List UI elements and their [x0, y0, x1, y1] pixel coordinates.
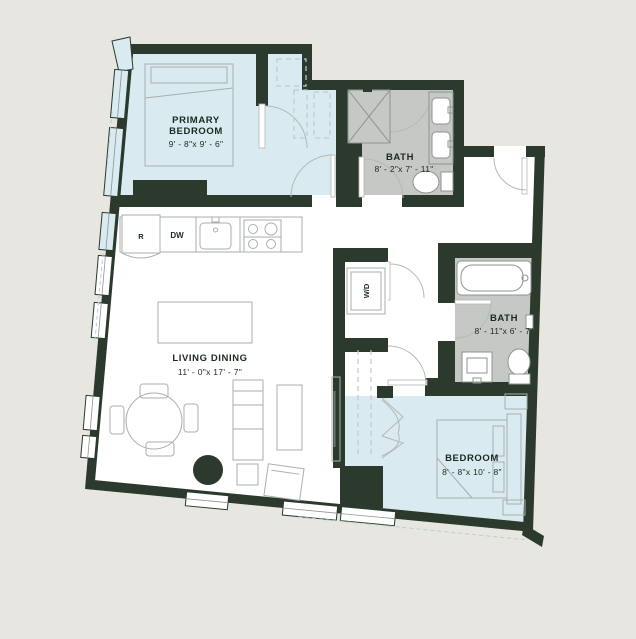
- entry-door-leaf: [522, 158, 527, 194]
- bath1-left-wall: [336, 80, 348, 207]
- floor-plan: W/D PRIMARY BEDROOM 9' -: [0, 0, 636, 639]
- side-table: [193, 455, 223, 485]
- bath2-left-wall-upper: [438, 243, 455, 303]
- primary-bedroom-label-1: PRIMARY: [172, 115, 220, 126]
- laundry: W/D: [345, 262, 388, 338]
- primary-bedroom-dims: 9' - 8"x 9' - 6": [169, 139, 224, 149]
- bath1-door-leaf: [359, 157, 364, 197]
- bath2-label: BATH: [490, 313, 518, 324]
- bath1-right-wall: [453, 80, 464, 207]
- laundry-bottom-wall: [333, 338, 388, 352]
- bedroom-dims: 8' - 8"x 10' - 8": [442, 467, 502, 477]
- bath1-top-wall: [312, 80, 464, 90]
- bath1-sink-2: [432, 132, 450, 158]
- bath2-toilet-bowl: [508, 349, 530, 375]
- kitchen-wall-chunk: [133, 180, 207, 200]
- living-dining-dims: 11' - 0"x 17' - 7": [178, 367, 242, 377]
- step-wall: [302, 44, 312, 90]
- bath2-toilet-tank: [509, 374, 530, 384]
- primary-bedroom-label-2: BEDROOM: [169, 126, 223, 137]
- shower-head: [363, 87, 372, 92]
- primary-closet-door-leaf: [259, 104, 265, 148]
- dishwasher-label: DW: [170, 231, 184, 240]
- bedroom-label: BEDROOM: [445, 453, 499, 464]
- bath2-left-wall-lower: [438, 341, 455, 382]
- washer-dryer-label: W/D: [362, 283, 371, 298]
- bath1-label: BATH: [386, 152, 414, 163]
- bath2-door-leaf: [455, 300, 491, 304]
- floor-plan-page: W/D PRIMARY BEDROOM 9' -: [0, 0, 636, 639]
- bedroom-sw-wall-chunk: [340, 466, 383, 508]
- living-dining-label: LIVING DINING: [172, 353, 247, 364]
- closet-divider-wall: [256, 44, 268, 106]
- bath1-sink-1: [432, 98, 450, 124]
- bath1-bottom-wall: [402, 195, 464, 207]
- kitchen-sink: [200, 223, 231, 249]
- top-wall: [124, 44, 312, 54]
- entry-top-wall-left: [464, 146, 494, 157]
- primary-bedroom-door-leaf: [331, 155, 335, 197]
- corner-window: [112, 37, 133, 72]
- refrigerator-label: R: [138, 232, 144, 241]
- bath1-toilet-tank: [441, 172, 453, 191]
- bath1-toilet-bowl: [413, 171, 439, 193]
- bedroom-door-leaf: [388, 380, 427, 385]
- bath2-dims: 8' - 11"x 6' - 7": [474, 326, 533, 336]
- bath1-dims: 8' - 2"x 7' - 11": [374, 164, 433, 174]
- closet-east-stub: [377, 386, 393, 398]
